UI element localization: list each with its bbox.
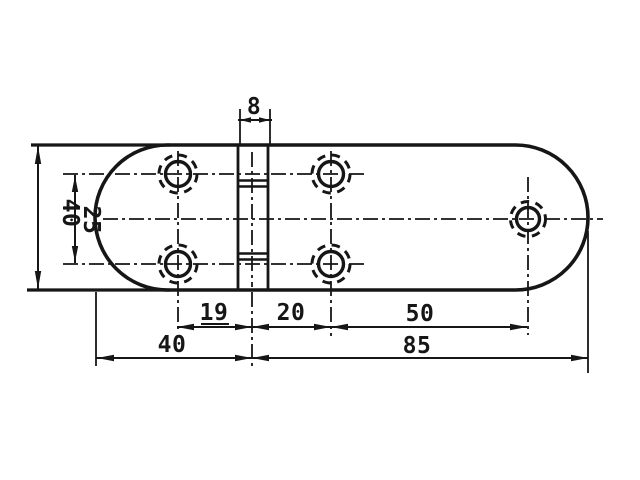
arrowhead [235,355,252,361]
arrowhead [35,271,41,289]
arrowhead [72,246,78,262]
dim-label-8: 8 [247,94,261,120]
dim-row-leaf-lengths: 40 85 [96,231,588,373]
arrowhead [72,176,78,192]
hinge-pin-strip [238,146,268,289]
drawing-canvas: 8 40 25 19 20 50 [0,0,640,480]
arrowhead [252,355,269,361]
arrowhead [510,324,527,330]
arrowhead [177,324,194,330]
dim-label-50: 50 [406,301,435,327]
hinge-plate-technical-drawing: 8 40 25 19 20 50 [0,0,640,480]
dim-label-25: 25 [78,206,104,235]
dim-pin-strip-width: 8 [238,94,272,144]
arrowhead [97,355,114,361]
arrowhead [35,146,41,164]
dim-label-85: 85 [403,333,432,359]
arrowhead [571,355,588,361]
arrowhead [331,324,348,330]
dim-label-20: 20 [277,300,306,326]
arrowhead [252,324,269,330]
arrowhead [235,324,252,330]
dim-label-19: 19 [200,300,229,326]
arrowhead [314,324,331,330]
centerlines [63,151,603,336]
dim-label-40-length: 40 [158,332,187,358]
